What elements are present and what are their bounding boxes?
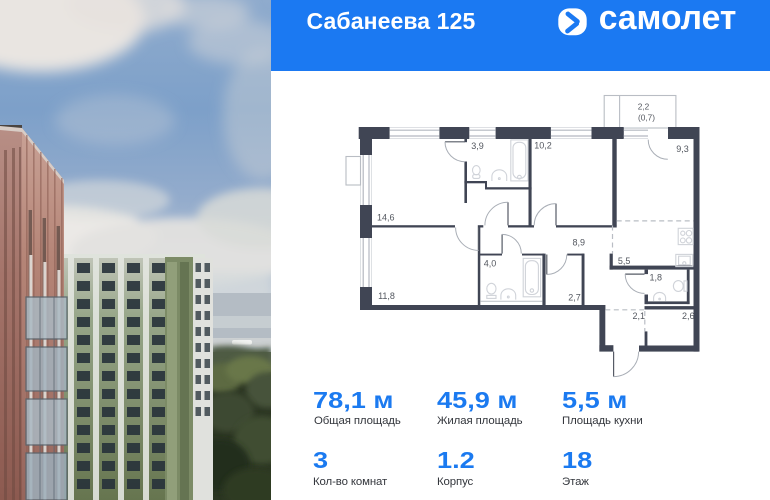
- svg-text:2,7: 2,7: [568, 293, 581, 303]
- svg-text:11,8: 11,8: [378, 291, 395, 301]
- svg-text:2,2: 2,2: [638, 102, 650, 112]
- svg-text:(0,7): (0,7): [638, 113, 655, 123]
- svg-text:3,9: 3,9: [471, 141, 484, 151]
- svg-text:5,5: 5,5: [618, 256, 631, 266]
- svg-text:8,9: 8,9: [573, 237, 586, 247]
- svg-text:1,8: 1,8: [650, 273, 663, 283]
- svg-text:4,0: 4,0: [484, 259, 497, 269]
- svg-text:9,3: 9,3: [676, 144, 689, 154]
- svg-text:10,2: 10,2: [534, 141, 552, 151]
- svg-text:2,6: 2,6: [682, 311, 695, 321]
- svg-text:2,1: 2,1: [633, 311, 646, 321]
- svg-text:14,6: 14,6: [377, 213, 395, 223]
